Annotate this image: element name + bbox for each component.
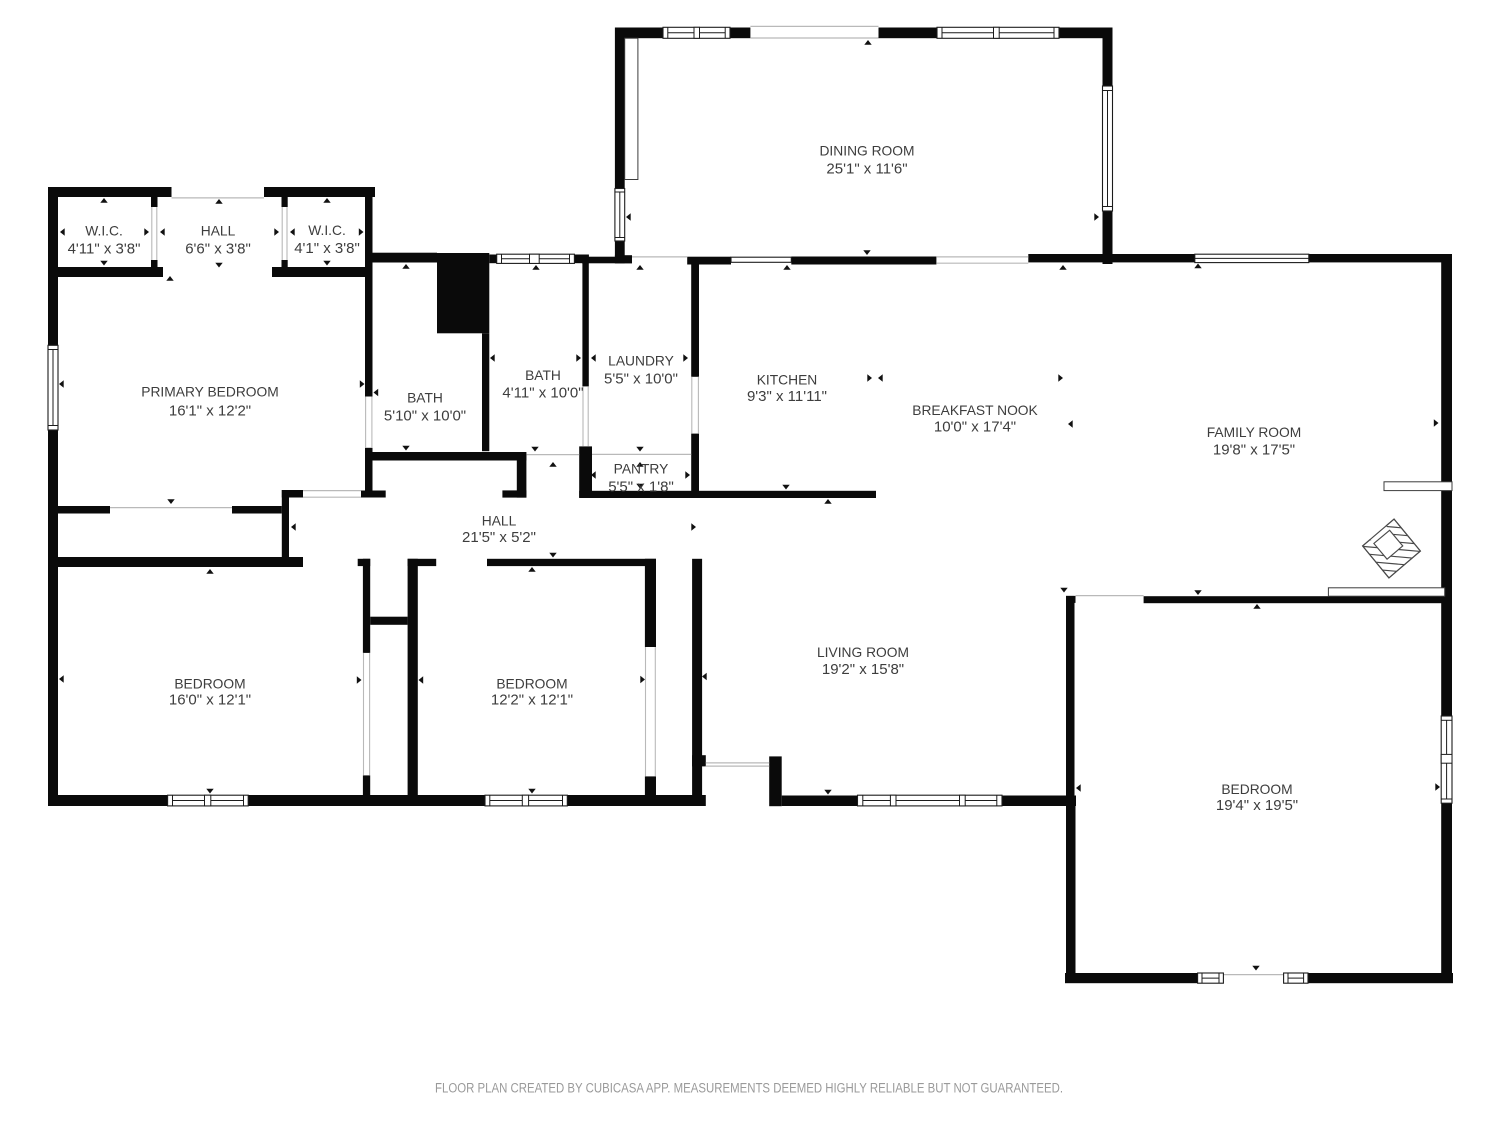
svg-text:25'1" x 11'6": 25'1" x 11'6": [826, 161, 907, 178]
svg-text:19'4" x 19'5": 19'4" x 19'5": [1216, 797, 1298, 814]
svg-text:BEDROOM: BEDROOM: [174, 677, 245, 692]
svg-text:21'5" x 5'2": 21'5" x 5'2": [462, 529, 536, 546]
svg-text:HALL: HALL: [482, 514, 517, 529]
svg-text:5'5" x 10'0": 5'5" x 10'0": [604, 371, 678, 388]
svg-text:5'5" x 1'8": 5'5" x 1'8": [608, 479, 674, 496]
svg-text:BATH: BATH: [407, 391, 443, 406]
svg-text:5'10" x 10'0": 5'10" x 10'0": [384, 408, 466, 425]
svg-text:16'0" x 12'1": 16'0" x 12'1": [169, 692, 251, 709]
svg-text:19'8" x 17'5": 19'8" x 17'5": [1213, 442, 1295, 459]
svg-text:HALL: HALL: [201, 224, 236, 239]
svg-text:4'11" x 10'0": 4'11" x 10'0": [502, 385, 583, 402]
svg-text:6'6" x 3'8": 6'6" x 3'8": [185, 241, 251, 258]
svg-text:W.I.C.: W.I.C.: [85, 224, 123, 239]
svg-text:BEDROOM: BEDROOM: [496, 677, 567, 692]
svg-text:W.I.C.: W.I.C.: [308, 223, 346, 238]
svg-text:FAMILY ROOM: FAMILY ROOM: [1207, 425, 1302, 440]
svg-text:BEDROOM: BEDROOM: [1221, 782, 1292, 797]
svg-text:16'1" x 12'2": 16'1" x 12'2": [169, 403, 251, 420]
svg-text:10'0" x 17'4": 10'0" x 17'4": [934, 419, 1016, 436]
svg-text:19'2" x 15'8": 19'2" x 15'8": [822, 661, 904, 678]
svg-text:BATH: BATH: [525, 368, 561, 383]
svg-text:4'1" x 3'8": 4'1" x 3'8": [294, 240, 360, 257]
svg-text:4'11" x 3'8": 4'11" x 3'8": [68, 241, 141, 258]
svg-text:12'2" x 12'1": 12'2" x 12'1": [491, 692, 573, 709]
svg-text:KITCHEN: KITCHEN: [757, 373, 818, 388]
svg-text:LIVING ROOM: LIVING ROOM: [817, 645, 909, 660]
svg-text:9'3" x 11'11": 9'3" x 11'11": [747, 388, 827, 405]
svg-text:PANTRY: PANTRY: [614, 462, 669, 477]
svg-text:DINING ROOM: DINING ROOM: [819, 144, 914, 159]
svg-text:LAUNDRY: LAUNDRY: [608, 354, 674, 369]
svg-text:BREAKFAST NOOK: BREAKFAST NOOK: [912, 403, 1038, 418]
svg-text:PRIMARY BEDROOM: PRIMARY BEDROOM: [141, 385, 278, 400]
svg-text:FLOOR PLAN CREATED BY CUBICASA: FLOOR PLAN CREATED BY CUBICASA APP. MEAS…: [435, 1081, 1063, 1096]
